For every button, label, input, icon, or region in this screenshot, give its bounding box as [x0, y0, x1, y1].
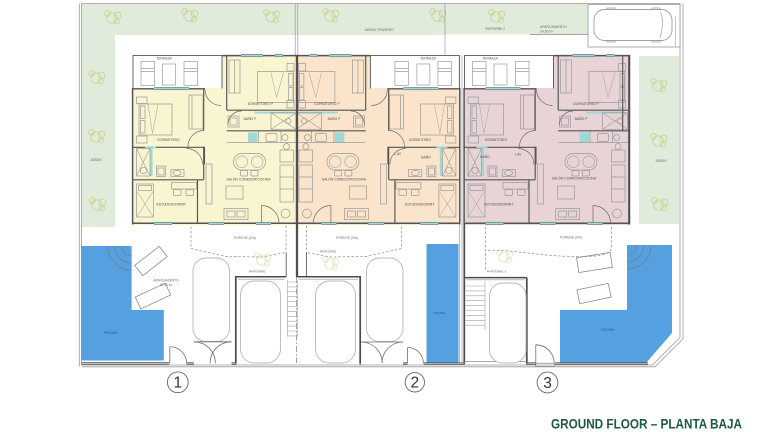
svg-text:DORMITORIO P: DORMITORIO P — [573, 102, 599, 106]
svg-text:BAÑO: BAÑO — [421, 155, 431, 160]
svg-text:BAÑO: BAÑO — [480, 154, 490, 159]
svg-text:ESTUDIO/DORMIT.: ESTUDIO/DORMIT. — [157, 203, 187, 207]
svg-text:24,50 m²: 24,50 m² — [540, 30, 554, 34]
svg-text:2: 2 — [410, 375, 419, 392]
svg-text:DORMITORIO P: DORMITORIO P — [248, 102, 274, 106]
svg-text:BAÑO P: BAÑO P — [328, 116, 342, 121]
svg-text:PISCINA: PISCINA — [433, 311, 445, 315]
svg-text:TERRAZA: TERRAZA — [482, 57, 499, 61]
svg-text:DORMITORIO: DORMITORIO — [485, 138, 507, 142]
svg-text:JARDIN TRASERO: JARDIN TRASERO — [364, 28, 394, 32]
svg-text:APARCAMIENTO: APARCAMIENTO — [153, 279, 179, 283]
svg-text:BAÑO P: BAÑO P — [575, 116, 589, 121]
svg-text:LAV: LAV — [515, 153, 522, 157]
svg-text:3: 3 — [543, 375, 552, 392]
svg-text:SALÓN COMEDOR/COCINA: SALÓN COMEDOR/COCINA — [226, 177, 271, 182]
svg-text:ESTUDIO/DORMIT.: ESTUDIO/DORMIT. — [484, 203, 514, 207]
svg-text:PARTERRE 2: PARTERRE 2 — [485, 27, 505, 31]
svg-text:L.AV: L.AV — [394, 152, 402, 156]
svg-text:15,53 m²: 15,53 m² — [160, 283, 173, 287]
svg-text:PARTERRE: PARTERRE — [320, 250, 337, 254]
svg-text:ESTUDIO/DORMIT.: ESTUDIO/DORMIT. — [405, 203, 435, 207]
svg-text:PISCINA: PISCINA — [104, 331, 118, 335]
svg-text:PORCHE (S/A): PORCHE (S/A) — [336, 236, 358, 240]
svg-text:JARDIN: JARDIN — [90, 158, 102, 162]
svg-text:PARTERRE 3: PARTERRE 3 — [487, 270, 506, 274]
svg-text:PORCHE (S/A): PORCHE (S/A) — [560, 236, 582, 240]
svg-text:TERRAZA: TERRAZA — [420, 57, 437, 61]
svg-text:BAÑO P: BAÑO P — [244, 116, 258, 121]
svg-text:PARTERRE: PARTERRE — [249, 270, 266, 274]
svg-text:TERRAZA: TERRAZA — [156, 57, 173, 61]
svg-text:1: 1 — [173, 375, 182, 392]
svg-text:DORMITORIO: DORMITORIO — [158, 138, 180, 142]
svg-text:APARCAMIENTO: APARCAMIENTO — [540, 25, 567, 29]
svg-text:PORCHE (S/A): PORCHE (S/A) — [234, 236, 256, 240]
svg-text:SALÓN COMEDOR/COCINA: SALÓN COMEDOR/COCINA — [322, 177, 367, 182]
svg-text:PISCINA: PISCINA — [601, 328, 615, 332]
svg-text:DORMITORIO P: DORMITORIO P — [314, 102, 340, 106]
svg-text:DORMITORIO: DORMITORIO — [409, 138, 431, 142]
svg-text:JARDIN: JARDIN — [655, 159, 667, 163]
svg-text:GROUND FLOOR – PLANTA BAJA: GROUND FLOOR – PLANTA BAJA — [551, 417, 742, 432]
svg-text:SALÓN COMEDOR/COCINA: SALÓN COMEDOR/COCINA — [552, 176, 597, 181]
